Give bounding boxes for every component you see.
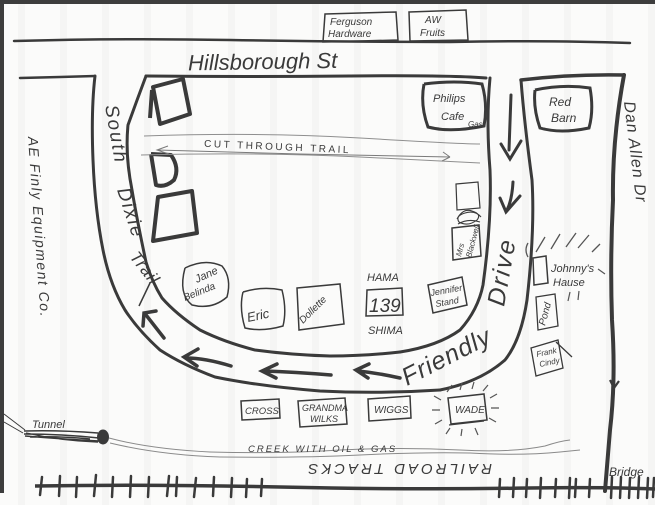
- svg-text:Red: Red: [549, 95, 571, 109]
- svg-text:Hause: Hause: [553, 277, 585, 289]
- svg-text:CROSS: CROSS: [245, 406, 279, 417]
- svg-text:RAILROAD TRACKS: RAILROAD TRACKS: [305, 460, 492, 477]
- svg-text:Tunnel: Tunnel: [32, 419, 65, 431]
- svg-text:Hardware: Hardware: [328, 29, 372, 40]
- svg-text:GRANDMA: GRANDMA: [302, 403, 348, 413]
- svg-text:WADE: WADE: [455, 405, 485, 416]
- svg-text:139: 139: [369, 296, 401, 317]
- svg-text:AW: AW: [424, 15, 442, 26]
- svg-text:CREEK WITH OIL & GAS: CREEK WITH OIL & GAS: [248, 444, 397, 455]
- svg-text:Johnny's: Johnny's: [550, 263, 595, 275]
- svg-text:Barn: Barn: [551, 111, 577, 125]
- svg-text:Bridge: Bridge: [609, 465, 644, 479]
- svg-text:WILKS: WILKS: [310, 414, 338, 424]
- svg-text:Fruits: Fruits: [420, 28, 445, 39]
- svg-text:Cafe: Cafe: [441, 111, 464, 123]
- svg-text:HAMA: HAMA: [367, 272, 399, 284]
- svg-text:Ferguson: Ferguson: [330, 17, 373, 28]
- svg-text:Hillsborough St: Hillsborough St: [188, 48, 338, 76]
- svg-text:SHIMA: SHIMA: [368, 325, 403, 337]
- svg-text:WIGGS: WIGGS: [374, 405, 409, 416]
- svg-text:Philips: Philips: [433, 93, 466, 105]
- svg-text:Gas: Gas: [468, 120, 483, 129]
